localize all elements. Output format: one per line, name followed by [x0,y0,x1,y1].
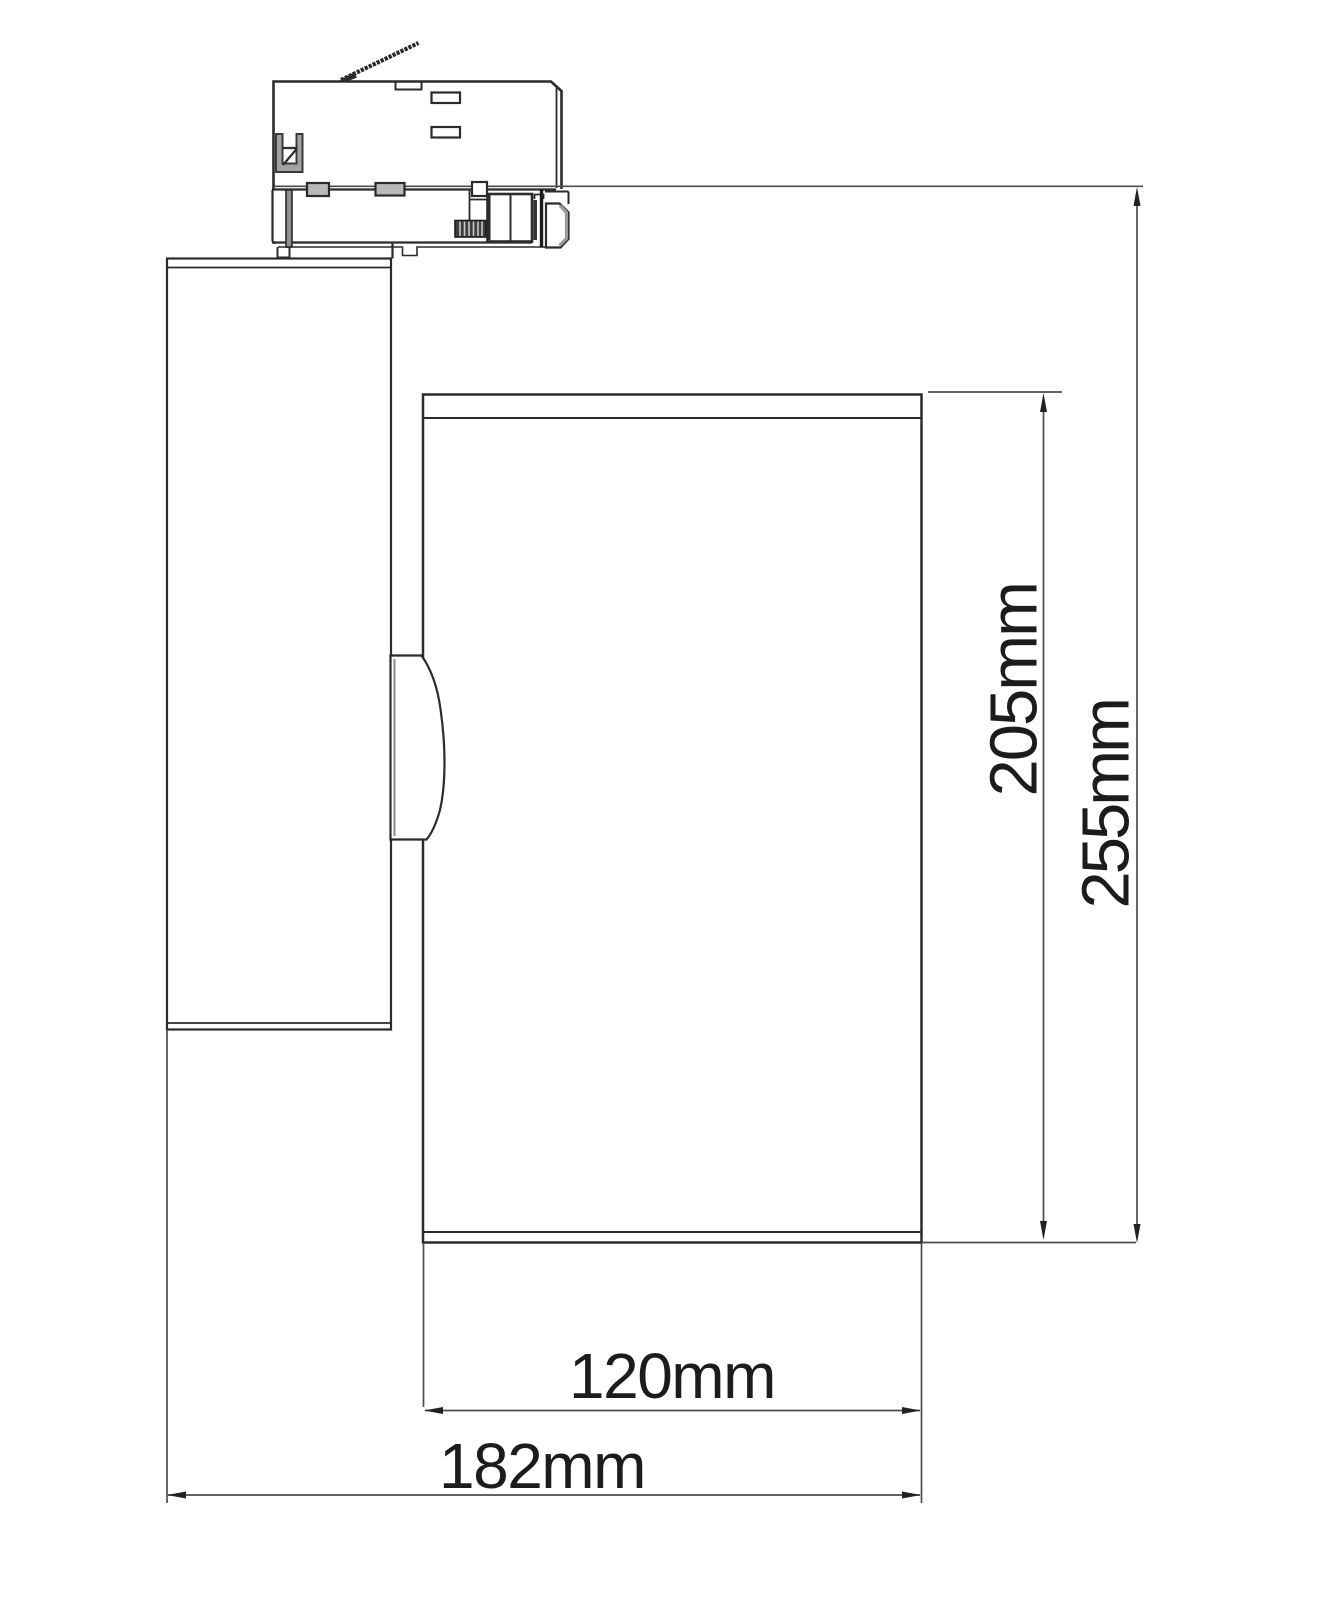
svg-text:120mm: 120mm [569,1340,775,1412]
svg-text:182mm: 182mm [439,1430,645,1502]
svg-text:255mm: 255mm [1069,700,1144,908]
svg-text:205mm: 205mm [977,583,1052,796]
